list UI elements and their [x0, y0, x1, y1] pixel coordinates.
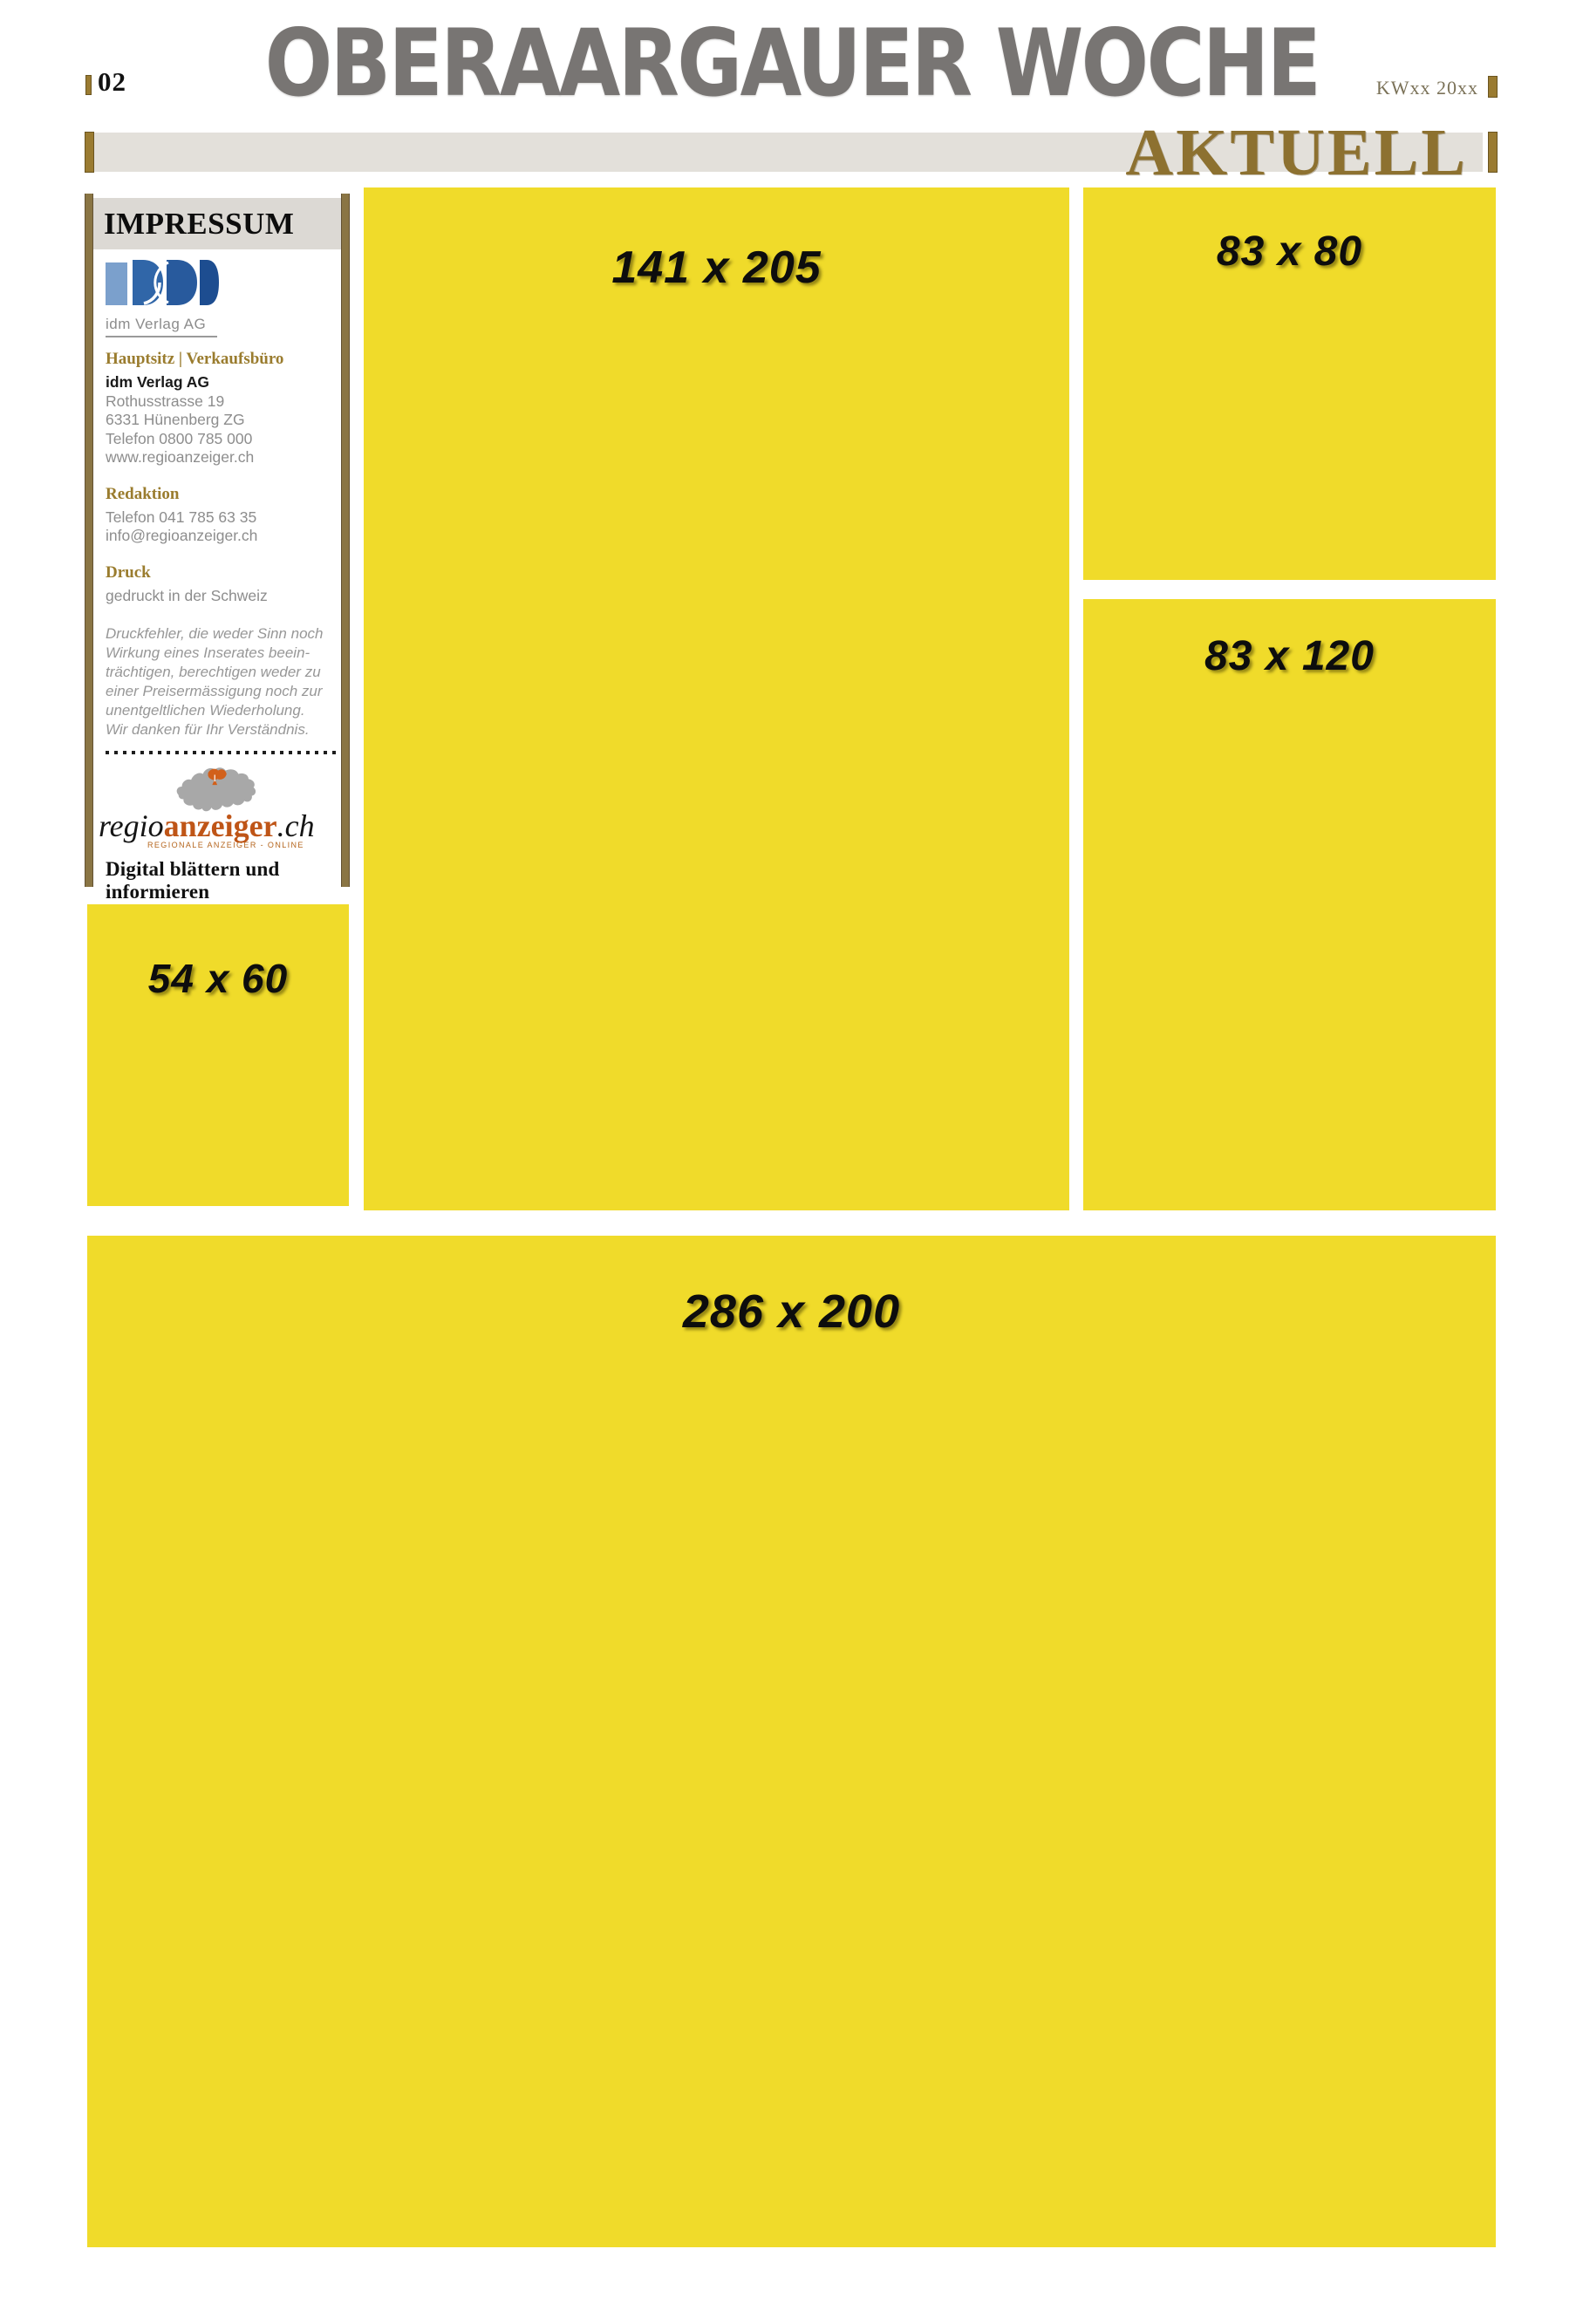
disclaimer-line: unentgeltlichen Wiederholung.	[106, 701, 336, 720]
impressum-title: IMPRESSUM	[93, 198, 341, 249]
regioanzeiger-logo: regioanzeiger.ch	[99, 810, 336, 843]
ad-slot-54x60[interactable]: 54 x 60	[87, 904, 349, 1206]
idm-logo-rule	[106, 336, 217, 337]
band-right-gold-bar	[1488, 132, 1498, 173]
ad-slot-141x205[interactable]: 141 x 205	[364, 187, 1069, 1210]
print-line: gedruckt in der Schweiz	[106, 587, 336, 606]
cta-line: Digital blättern und	[106, 858, 336, 881]
section-heading: Druck	[106, 563, 336, 583]
brand-tld: .ch	[277, 808, 315, 843]
band-left-gold-bar	[85, 132, 94, 173]
cta-line: informieren	[106, 881, 336, 903]
ad-slot-label: 141 x 205	[611, 242, 821, 294]
ad-slot-83x80[interactable]: 83 x 80	[1083, 187, 1496, 580]
ad-slot-83x120[interactable]: 83 x 120	[1083, 599, 1496, 1210]
impressum-left-gold-bar	[85, 194, 93, 887]
idm-verlag-logo	[106, 256, 219, 309]
print-error-disclaimer: Druckfehler, die weder Sinn noch Wirkung…	[106, 624, 336, 739]
website-link[interactable]: www.regioanzeiger.ch	[106, 448, 336, 467]
section-title: AKTUELL	[1125, 119, 1468, 186]
address-line: Rothusstrasse 19	[106, 392, 336, 412]
ad-slot-label: 83 x 80	[1217, 228, 1362, 276]
phone-line: Telefon 041 785 63 35	[106, 508, 336, 528]
section-heading: Redaktion	[106, 485, 336, 504]
email-link[interactable]: info@regioanzeiger.ch	[106, 527, 336, 546]
disclaimer-line: Wir danken für Ihr Verständnis.	[106, 720, 336, 739]
disclaimer-line: Druckfehler, die weder Sinn noch	[106, 624, 336, 644]
digital-cta: Digital blättern und informieren	[106, 858, 336, 903]
idm-logo-caption: idm Verlag AG	[106, 316, 336, 333]
newspaper-page: 02 OBERAARGAUER WOCHE KWxx 20xx AKTUELL …	[0, 0, 1583, 2324]
impressum-section-hauptsitz: Hauptsitz | Verkaufsbüro idm Verlag AG R…	[106, 350, 336, 467]
disclaimer-line: Wirkung eines Inserates beein-	[106, 644, 336, 663]
address-line: 6331 Hünenberg ZG	[106, 411, 336, 430]
ad-slot-label: 54 x 60	[148, 955, 288, 1002]
company-name: idm Verlag AG	[106, 373, 336, 392]
dotted-divider	[106, 751, 336, 754]
impressum-body: idm Verlag AG Hauptsitz | Verkaufsbüro i…	[106, 256, 336, 903]
ad-slot-label: 83 x 120	[1204, 632, 1375, 680]
disclaimer-line: trächtigen, berechtigen weder zu	[106, 663, 336, 682]
disclaimer-line: einer Preisermässigung noch zur	[106, 682, 336, 701]
impressum-section-redaktion: Redaktion Telefon 041 785 63 35 info@reg…	[106, 485, 336, 546]
masthead-title: OBERAARGAUER WOCHE	[264, 17, 1319, 110]
brand-anzeiger: anzeiger	[164, 808, 277, 843]
impressum-section-druck: Druck gedruckt in der Schweiz	[106, 563, 336, 606]
impressum-box: IMPRESSUM idm Verlag AG Hauptsitz | Verk…	[85, 194, 350, 887]
ad-slot-286x200[interactable]: 286 x 200	[87, 1236, 1496, 2247]
switzerland-map-icon	[167, 761, 274, 812]
issue-gold-bar	[1488, 76, 1498, 98]
phone-line: Telefon 0800 785 000	[106, 430, 336, 449]
ad-slot-label: 286 x 200	[683, 1285, 900, 1339]
pagenum-gold-bar	[85, 75, 92, 95]
page-number: 02	[98, 66, 126, 98]
impressum-right-gold-bar	[341, 194, 350, 887]
section-heading: Hauptsitz | Verkaufsbüro	[106, 350, 336, 369]
issue-code: KWxx 20xx	[1348, 77, 1478, 99]
brand-regio: regio	[99, 808, 164, 843]
